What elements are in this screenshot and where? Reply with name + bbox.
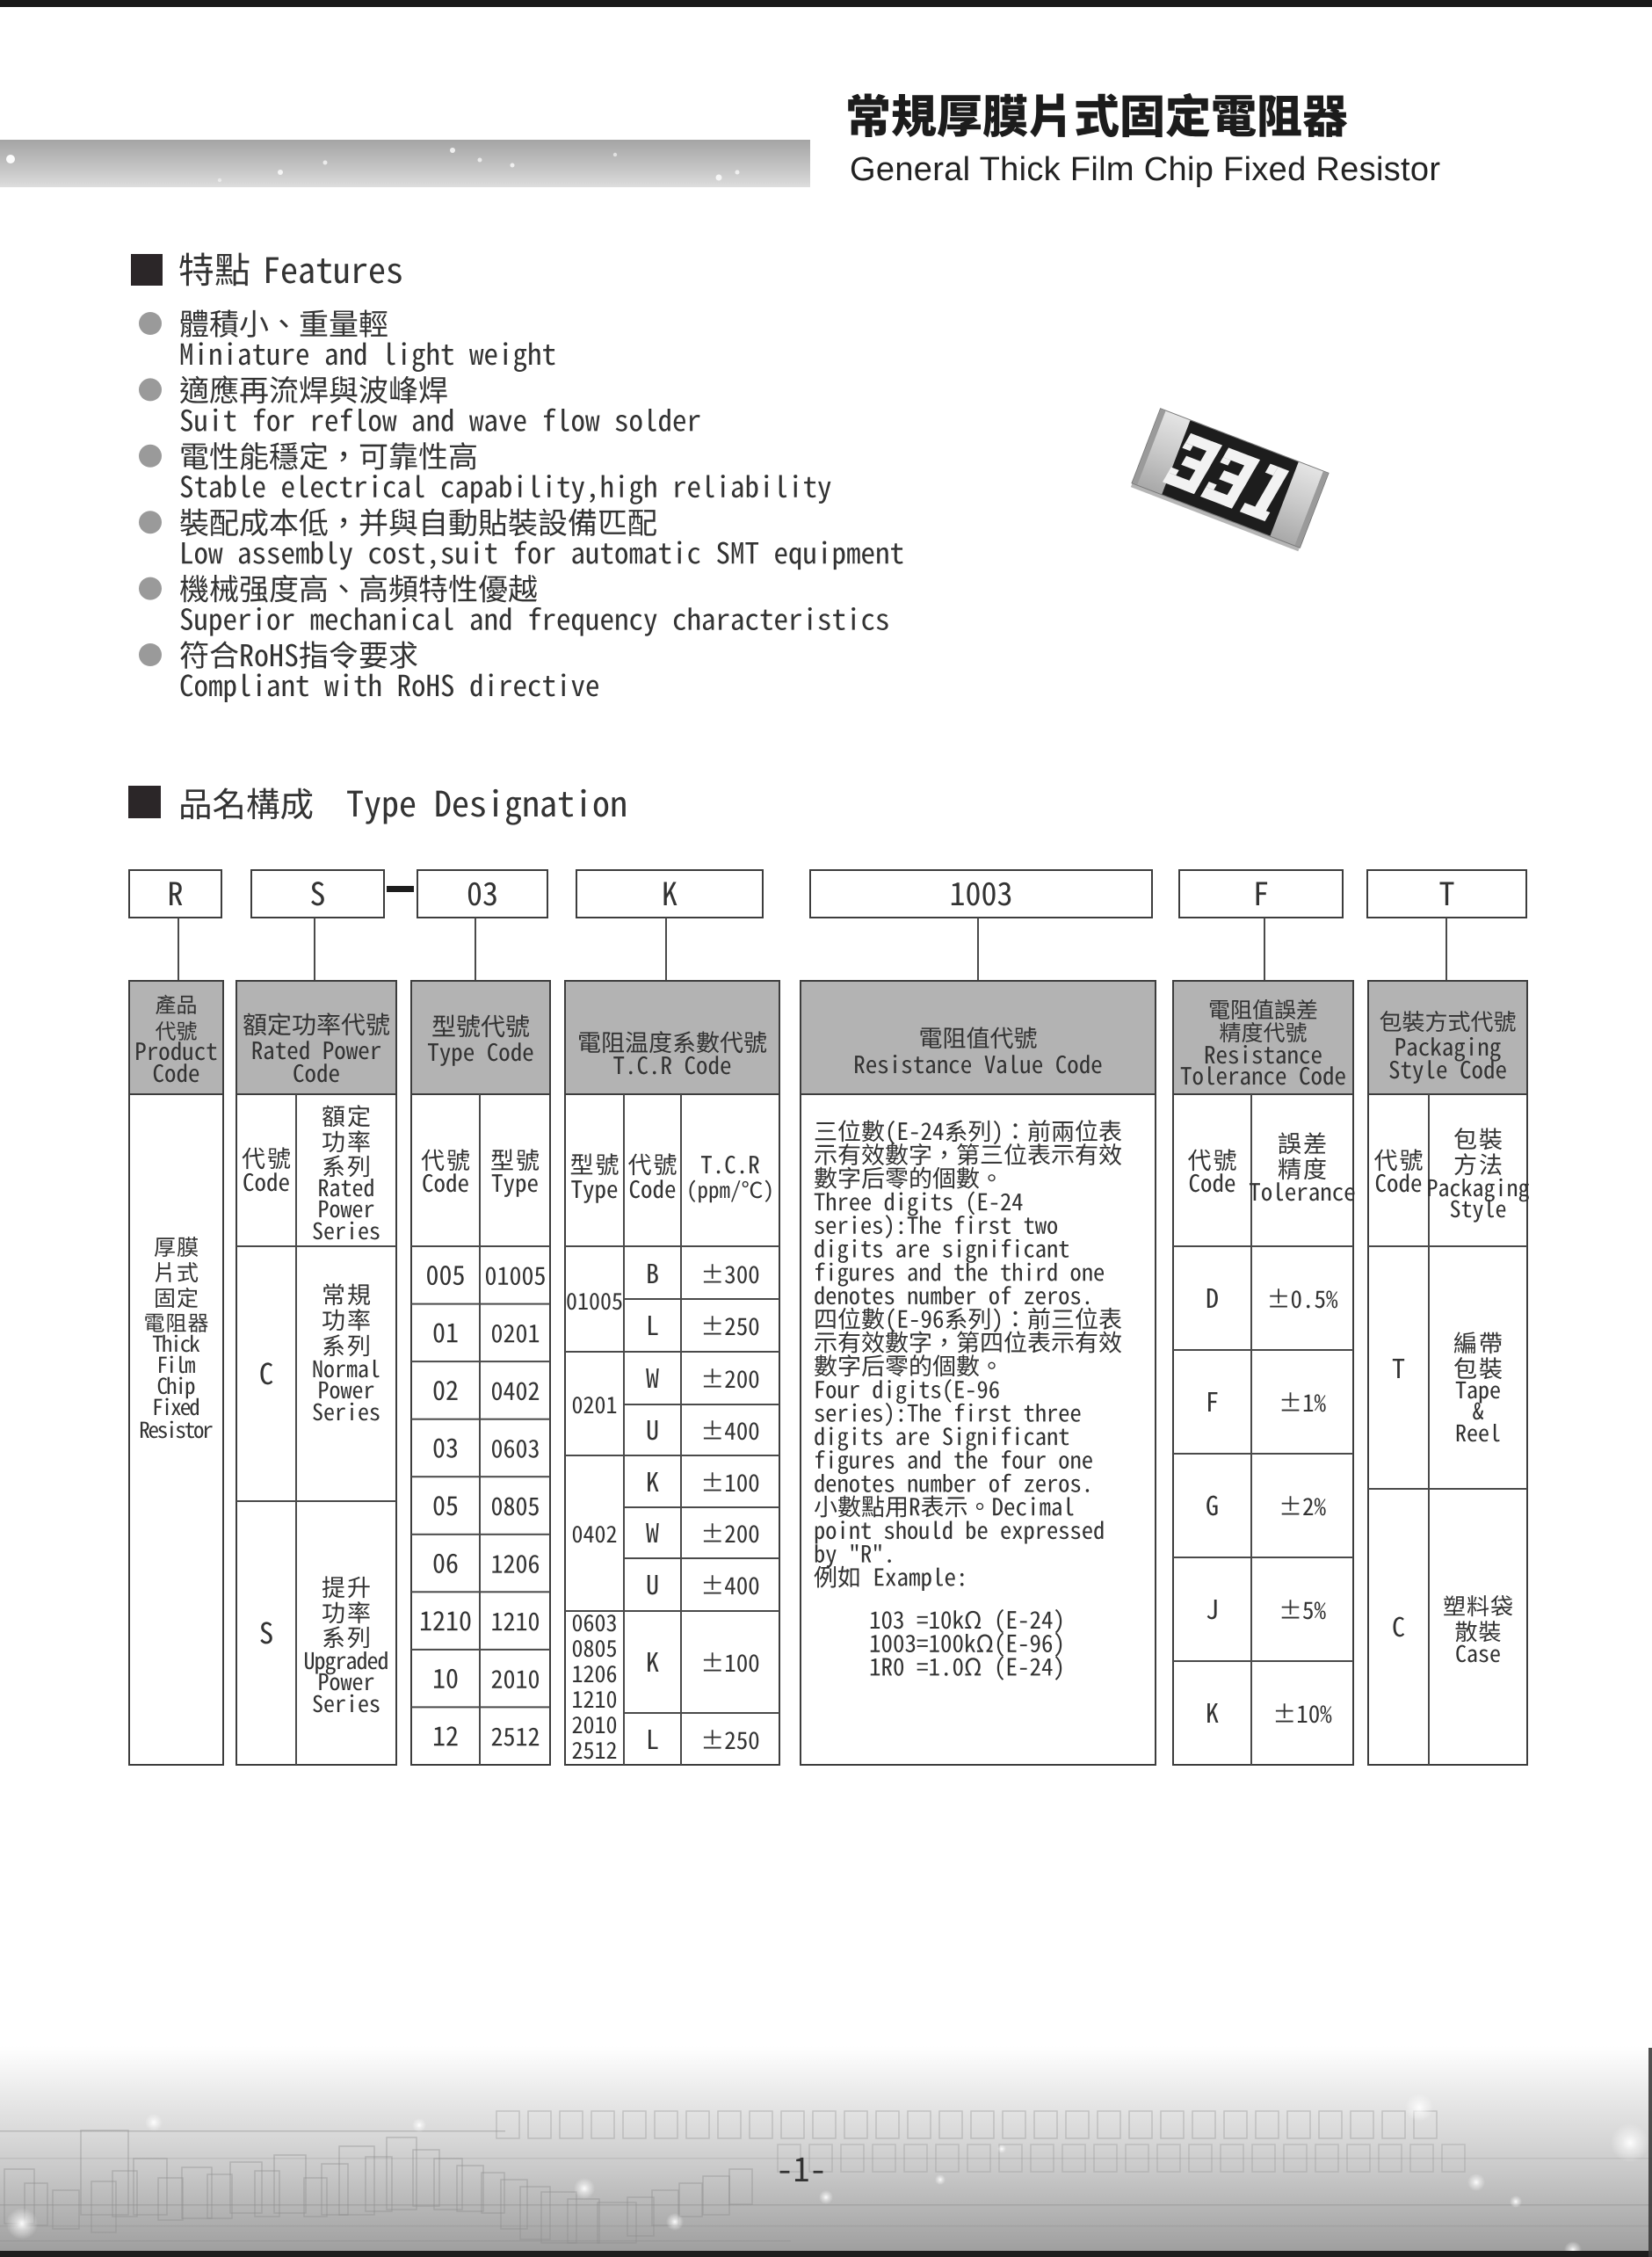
- svg-text:General Thick Film Chip Fixed: General Thick Film Chip Fixed Resistor: [850, 151, 1440, 188]
